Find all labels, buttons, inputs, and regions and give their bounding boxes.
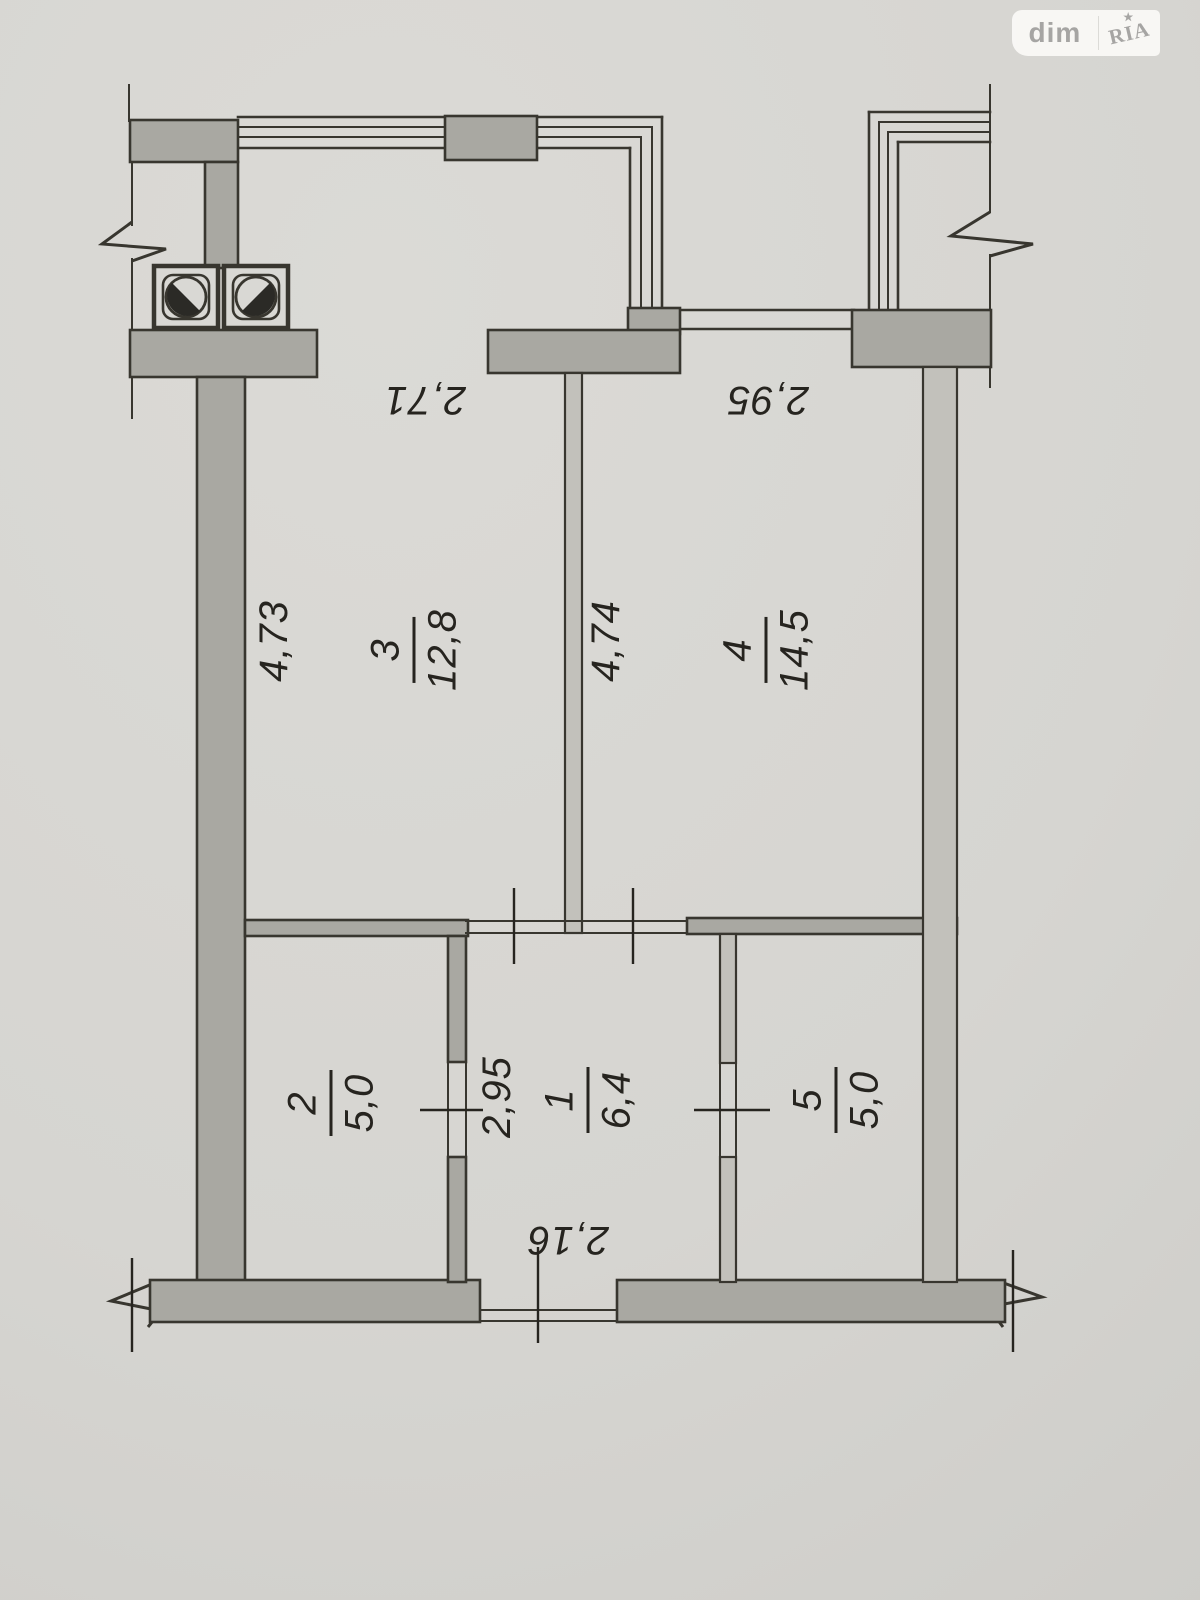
dimension-room3-width: 2,71 — [384, 380, 466, 420]
partition-room3-room4 — [565, 373, 582, 933]
wall-bottom-left — [150, 1280, 480, 1322]
wall-block-center — [488, 330, 680, 373]
logo-star-icon: ★ — [1123, 10, 1134, 23]
wall-mid-left — [245, 920, 468, 936]
room-area: 6,4 — [597, 1071, 637, 1130]
break-icon-right-top — [951, 212, 1033, 256]
room-area: 5,0 — [845, 1071, 885, 1130]
room-label-1: 1 6,4 — [540, 1067, 637, 1133]
room-area: 12,8 — [423, 609, 463, 691]
dimria-watermark: dim ★ RIA — [1012, 10, 1160, 56]
wall-vent-band — [130, 330, 317, 377]
fraction-line — [413, 617, 416, 683]
balcony-sill-lines — [678, 310, 854, 329]
dimension-room4-width: 2,95 — [727, 380, 809, 420]
logo-ria-text: ★ RIA — [1097, 14, 1162, 52]
wall-left-upper-strip — [205, 162, 238, 268]
dimension-room3-depth: 4,73 — [254, 600, 294, 682]
room-label-2: 2 5,0 — [283, 1070, 380, 1136]
wall-right — [923, 367, 957, 1282]
partition-room2-room1-lower — [448, 1157, 466, 1282]
fraction-line — [587, 1067, 590, 1133]
partition-room1-room5-lower — [720, 1157, 736, 1282]
logo-dim-text: dim — [1012, 17, 1098, 49]
window-band-right — [869, 112, 990, 320]
floor-plan-page: 2,71 2,95 4,73 4,74 2,95 2,16 3 12,8 4 1… — [0, 0, 1200, 1600]
dimension-room4-depth: 4,74 — [586, 600, 626, 682]
wall-bottom-right — [617, 1280, 1005, 1322]
fraction-line — [765, 617, 768, 683]
wall-window-pier — [445, 116, 537, 160]
room-number: 3 — [366, 638, 406, 661]
room-label-4: 4 14,5 — [718, 609, 815, 691]
partition-room1-room5-upper — [720, 934, 736, 1063]
ventilation-shafts — [154, 266, 288, 328]
wall-block-right-top — [852, 310, 991, 367]
room-label-5: 5 5,0 — [788, 1067, 885, 1133]
room-area: 5,0 — [340, 1074, 380, 1133]
room-label-3: 3 12,8 — [366, 609, 463, 691]
wall-left — [197, 377, 245, 1282]
partition-room2-room1-upper — [448, 936, 466, 1062]
floor-plan-drawing — [0, 0, 1200, 1600]
room-number: 2 — [283, 1091, 323, 1114]
wall-mid-right — [687, 918, 957, 934]
room-number: 1 — [540, 1088, 580, 1111]
fraction-line — [330, 1070, 333, 1136]
room-number: 4 — [718, 638, 758, 661]
room-number: 5 — [788, 1088, 828, 1111]
room-area: 14,5 — [775, 609, 815, 691]
break-icon-left-top — [102, 222, 166, 261]
wall-top-left-block — [130, 120, 238, 162]
walls-light — [565, 367, 957, 1282]
dimension-hall-width: 2,16 — [527, 1220, 609, 1260]
dimension-hall-depth: 2,95 — [477, 1056, 517, 1138]
fraction-line — [835, 1067, 838, 1133]
